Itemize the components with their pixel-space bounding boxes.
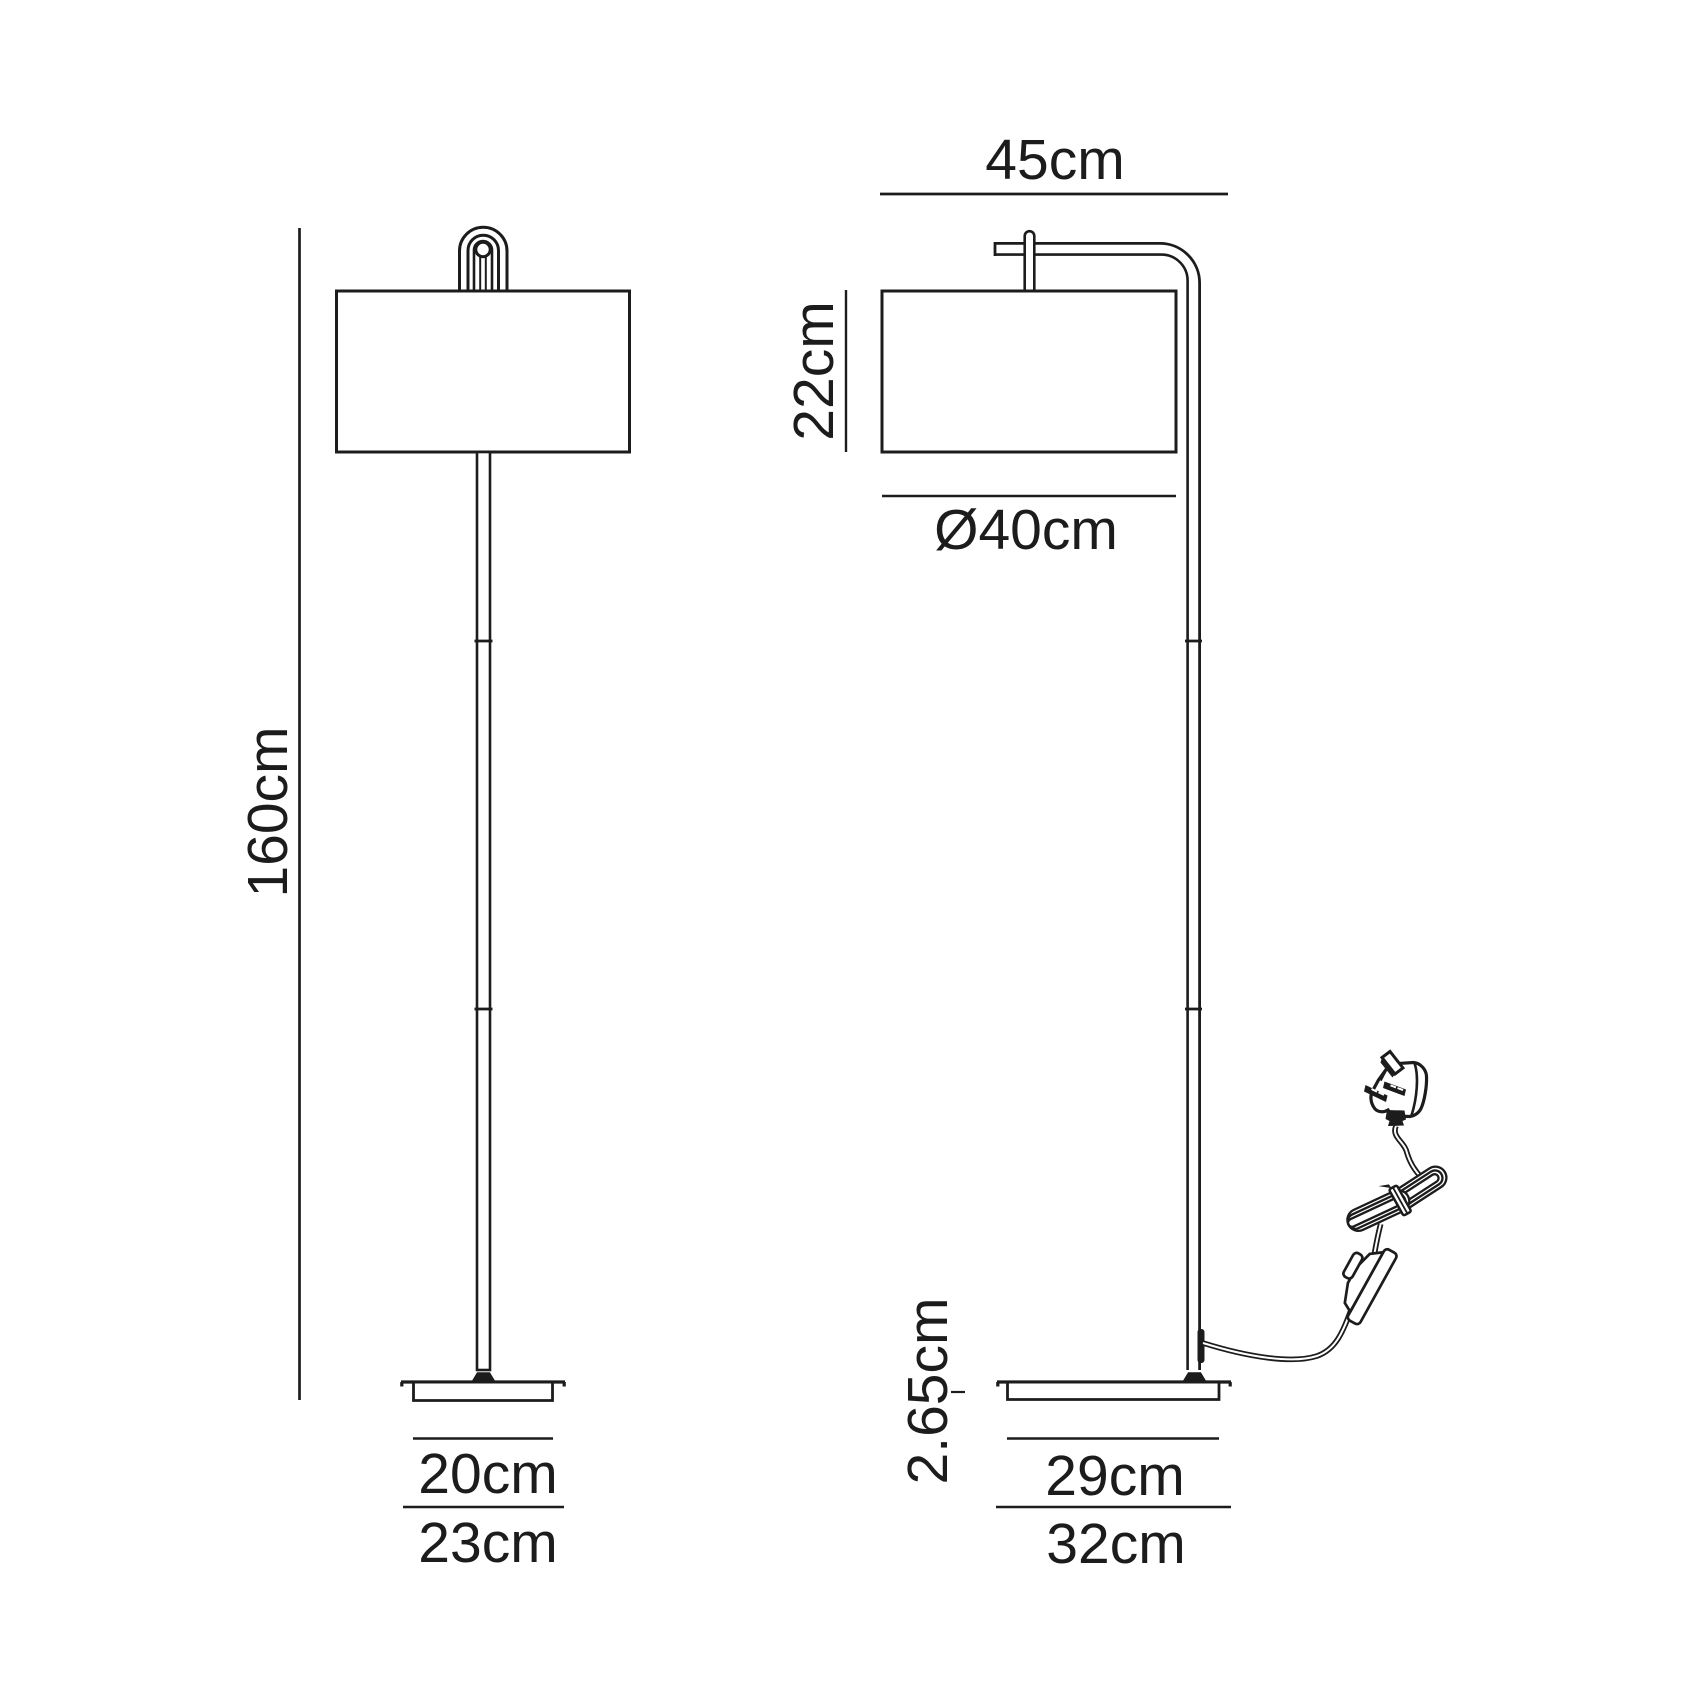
svg-text:160cm: 160cm bbox=[236, 726, 300, 897]
svg-text:29cm: 29cm bbox=[1045, 1444, 1184, 1508]
svg-text:45cm: 45cm bbox=[985, 128, 1124, 192]
svg-text:2.65cm: 2.65cm bbox=[896, 1298, 960, 1485]
svg-text:32cm: 32cm bbox=[1046, 1512, 1185, 1576]
svg-text:23cm: 23cm bbox=[418, 1511, 557, 1575]
svg-text:22cm: 22cm bbox=[782, 301, 846, 440]
svg-text:20cm: 20cm bbox=[418, 1442, 557, 1506]
svg-text:Ø40cm: Ø40cm bbox=[934, 498, 1118, 562]
